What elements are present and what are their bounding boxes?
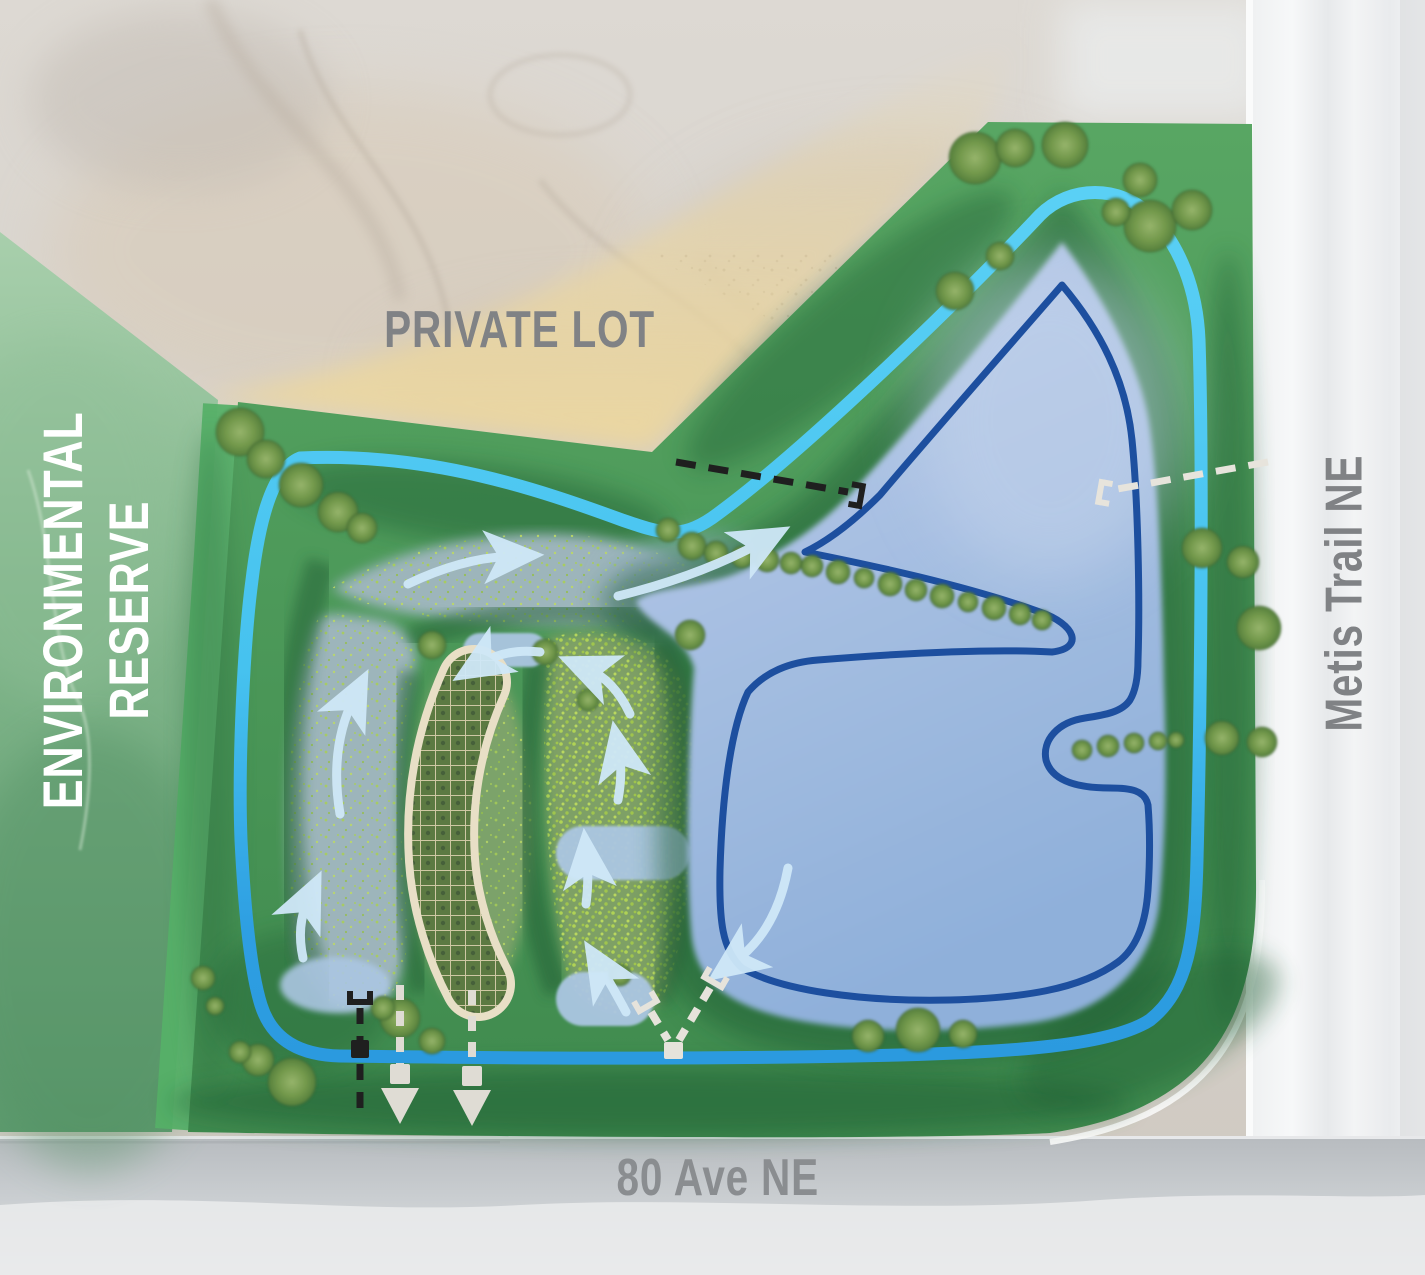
site-plan: PRIVATE LOT ENVIRONMENTAL RESERVE Metis … [0, 0, 1425, 1275]
tree-icon [577, 689, 599, 711]
tree-icon [247, 440, 285, 478]
tree-icon [1102, 198, 1130, 226]
reserve-label-line1: ENVIRONMENTAL [30, 411, 96, 809]
metis-trail-label-text: Metis Trail NE [1314, 455, 1375, 732]
manhole-square-icon [390, 1064, 410, 1084]
tree-icon [678, 532, 706, 560]
80-ave-label: 80 Ave NE [518, 1148, 918, 1209]
tree-icon [1182, 528, 1222, 568]
tree-icon [206, 997, 224, 1015]
flow-arrow-icon [586, 860, 588, 904]
tree-icon [675, 620, 705, 650]
80-ave-label-text: 80 Ave NE [617, 1148, 819, 1209]
tree-icon [936, 272, 974, 310]
tree-icon [268, 1058, 316, 1106]
manhole-square-icon [462, 1066, 482, 1086]
flow-arrow-icon [618, 752, 621, 800]
tree-icon [896, 1008, 940, 1052]
tree-icon [1124, 200, 1176, 252]
tree-icon [780, 552, 802, 574]
site-plan-map [0, 0, 1425, 1275]
tree-icon [949, 1020, 977, 1048]
tree-icon [986, 242, 1014, 270]
tree-icon [656, 518, 680, 542]
tree-icon [755, 548, 779, 572]
manhole-square-icon [664, 1042, 683, 1059]
tree-icon [279, 463, 323, 507]
tree-icon [1237, 606, 1281, 650]
tree-icon [1123, 163, 1157, 197]
environmental-reserve-label: ENVIRONMENTAL RESERVE [30, 310, 170, 910]
tree-icon [418, 631, 446, 659]
tree-icon [1172, 190, 1212, 230]
tree-icon [1227, 546, 1259, 578]
tree-icon [1247, 727, 1277, 757]
tree-icon [949, 132, 1001, 184]
reserve-label-line2: RESERVE [96, 501, 162, 720]
tree-icon [229, 1041, 251, 1063]
metis-trail-label: Metis Trail NE [1314, 344, 1375, 844]
manhole-square-icon [351, 1040, 369, 1058]
tree-icon [996, 129, 1034, 167]
private-lot-label-text: PRIVATE LOT [385, 300, 656, 361]
gridded-wetland-structure [441, 682, 478, 984]
tree-icon [852, 1020, 884, 1052]
tree-icon [347, 513, 377, 543]
tree-icon [371, 996, 395, 1020]
tree-icon [191, 966, 215, 990]
tree-icon [419, 1028, 445, 1054]
private-lot-label: PRIVATE LOT [330, 300, 710, 361]
tree-icon [1205, 721, 1239, 755]
tree-icon [1042, 122, 1088, 168]
